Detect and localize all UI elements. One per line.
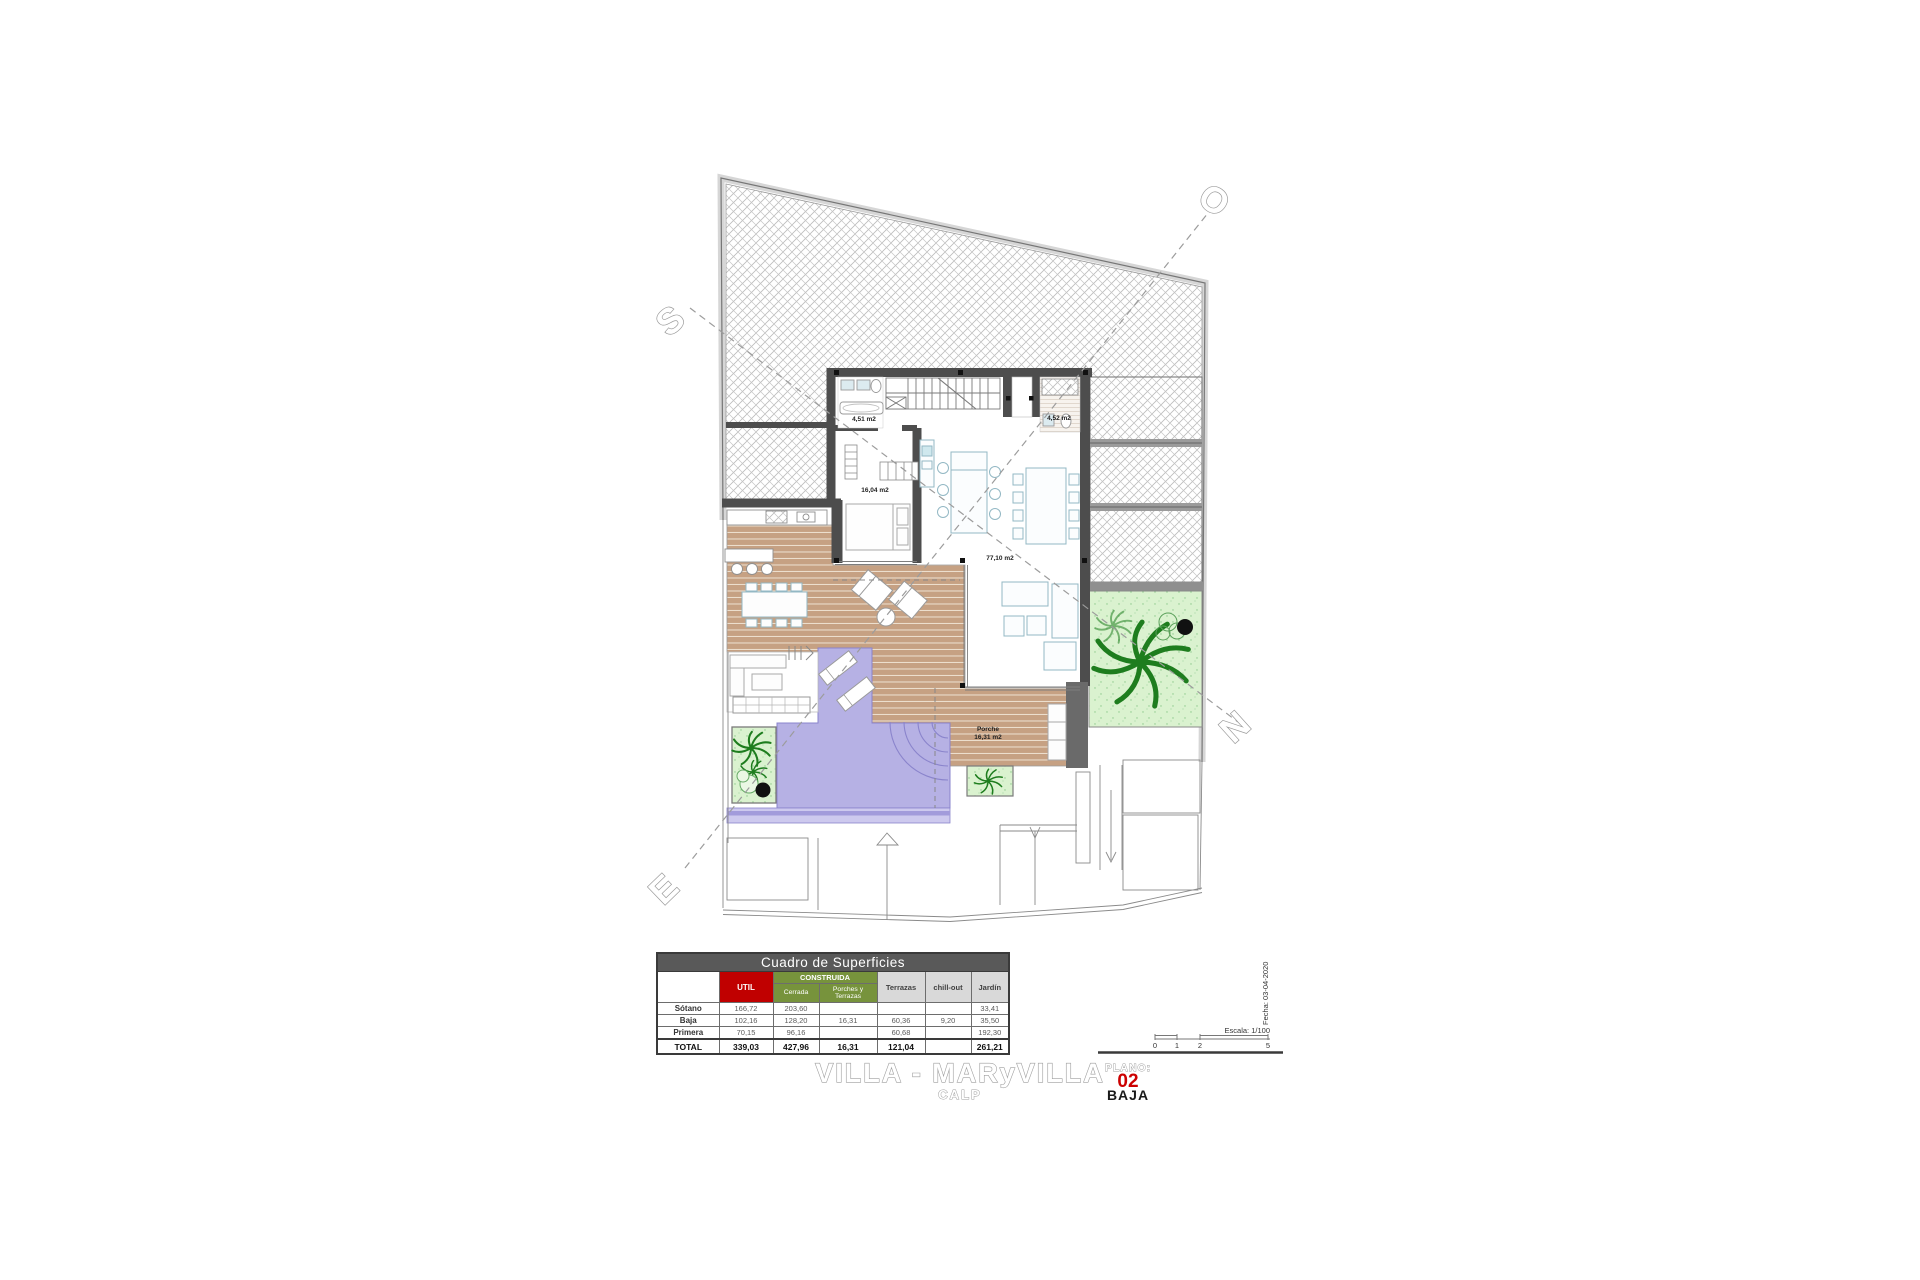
floor-plan-drawing: S O N E 4,51 m2 4,52 m2 16,04 m2 77,10 m… bbox=[0, 0, 1920, 1280]
surface-table: Cuadro de Superficies UTIL CONSTRUIDA Te… bbox=[656, 952, 1010, 1055]
label-living: 77,10 m2 bbox=[986, 555, 1014, 562]
table-row: Baja 102,16 128,20 16,31 60,36 9,20 35,5… bbox=[657, 1015, 1009, 1027]
cell-cerrada: 128,20 bbox=[773, 1015, 819, 1027]
table-title: Cuadro de Superficies bbox=[657, 953, 1009, 972]
cell-porches: 16,31 bbox=[819, 1039, 877, 1054]
escala-label: Escala: 1/100 bbox=[1225, 1026, 1270, 1035]
cell-util: 166,72 bbox=[719, 1003, 773, 1015]
header-chill-out: chill-out bbox=[925, 972, 971, 1003]
cell-util: 102,16 bbox=[719, 1015, 773, 1027]
planter-bottom-left bbox=[732, 727, 776, 803]
scale-tick-0: 0 bbox=[1153, 1041, 1157, 1050]
main-staircase bbox=[886, 378, 1000, 409]
row-label: Baja bbox=[657, 1015, 719, 1027]
cell-terrazas: 60,36 bbox=[877, 1015, 925, 1027]
fecha-label: Fecha: 03-04-2020 bbox=[1261, 962, 1270, 1025]
porche-furniture bbox=[1048, 704, 1066, 760]
planter-right-small bbox=[967, 766, 1013, 796]
cell-terrazas bbox=[877, 1003, 925, 1015]
cell-jardin: 192,30 bbox=[971, 1027, 1009, 1040]
cell-cerrada: 96,16 bbox=[773, 1027, 819, 1040]
cell-jardin: 33,41 bbox=[971, 1003, 1009, 1015]
cell-chill-out bbox=[925, 1027, 971, 1040]
plano-name: BAJA bbox=[1107, 1087, 1149, 1103]
compass-west: O bbox=[1191, 175, 1238, 225]
cell-terrazas: 121,04 bbox=[877, 1039, 925, 1054]
table-row: Sótano 166,72 203,60 33,41 bbox=[657, 1003, 1009, 1015]
cell-jardin: 261,21 bbox=[971, 1039, 1009, 1054]
cell-porches bbox=[819, 1027, 877, 1040]
chill-out-area bbox=[727, 646, 818, 713]
cell-chill-out bbox=[925, 1039, 971, 1054]
header-terrazas: Terrazas bbox=[877, 972, 925, 1003]
compass-south: S bbox=[648, 297, 693, 344]
garden-right bbox=[1089, 591, 1202, 727]
header-blank bbox=[657, 972, 719, 1003]
label-bath-left: 4,51 m2 bbox=[852, 416, 876, 423]
scale-tick-1: 1 bbox=[1175, 1041, 1179, 1050]
compass-east: E bbox=[640, 866, 686, 912]
row-label: Primera bbox=[657, 1027, 719, 1040]
header-construida: CONSTRUIDA bbox=[773, 972, 877, 984]
table-row: Primera 70,15 96,16 60,68 192,30 bbox=[657, 1027, 1009, 1040]
bedroom bbox=[846, 504, 910, 550]
cell-porches: 16,31 bbox=[819, 1015, 877, 1027]
cell-jardin: 35,50 bbox=[971, 1015, 1009, 1027]
project-title: VILLA - MARyVILLA bbox=[815, 1058, 1105, 1088]
cell-cerrada: 203,60 bbox=[773, 1003, 819, 1015]
label-bedroom: 16,04 m2 bbox=[861, 487, 889, 494]
cell-porches bbox=[819, 1003, 877, 1015]
header-jardin: Jardín bbox=[971, 972, 1009, 1003]
table-row-total: TOTAL 339,03 427,96 16,31 121,04 261,21 bbox=[657, 1039, 1009, 1054]
cell-chill-out: 9,20 bbox=[925, 1015, 971, 1027]
bathroom-right bbox=[1040, 377, 1080, 432]
cell-util: 339,03 bbox=[719, 1039, 773, 1054]
cell-terrazas: 60,68 bbox=[877, 1027, 925, 1040]
cell-chill-out bbox=[925, 1003, 971, 1015]
project-location: CALP bbox=[938, 1087, 981, 1102]
compass-north: N bbox=[1211, 703, 1258, 751]
drawing-sheet: S O N E 4,51 m2 4,52 m2 16,04 m2 77,10 m… bbox=[0, 0, 1920, 1280]
scale-tick-5: 5 bbox=[1266, 1041, 1270, 1050]
label-bath-right: 4,52 m2 bbox=[1047, 415, 1071, 422]
scale-tick-2: 2 bbox=[1198, 1041, 1202, 1050]
label-porche-area: 16,31 m2 bbox=[974, 734, 1002, 741]
header-util: UTIL bbox=[719, 972, 773, 1003]
header-porches: Porches y Terrazas bbox=[819, 984, 877, 1003]
pergola-table bbox=[733, 697, 810, 713]
cell-cerrada: 427,96 bbox=[773, 1039, 819, 1054]
header-cerrada: Cerrada bbox=[773, 984, 819, 1003]
label-porche-name: Porche bbox=[977, 726, 999, 733]
row-label: Sótano bbox=[657, 1003, 719, 1015]
cell-util: 70,15 bbox=[719, 1027, 773, 1040]
row-label: TOTAL bbox=[657, 1039, 719, 1054]
pool-walkway bbox=[727, 808, 950, 823]
